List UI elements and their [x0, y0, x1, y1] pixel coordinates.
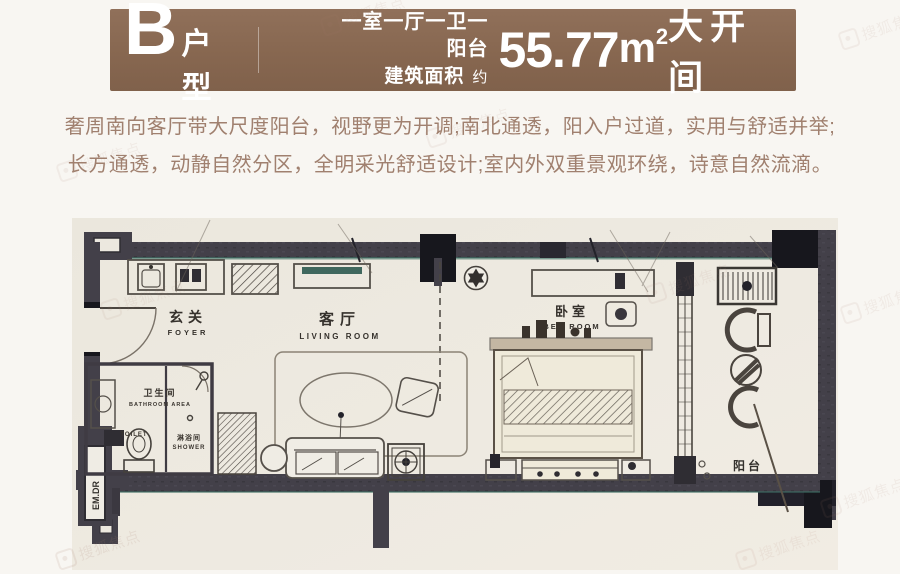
watermark: 搜狐焦点: [837, 5, 900, 52]
description-paragraph: 奢周南向客厅带大尺度阳台，视野更为开调;南北通透，阳入户过道，实用与舒适并举; …: [60, 108, 840, 184]
bedroom-label-cn: 卧室: [555, 304, 589, 319]
foyer-label-cn: 玄关: [169, 309, 207, 325]
bed-bench-icon: [522, 460, 618, 480]
watermark-camera-icon: [837, 27, 861, 51]
tv-icon: [302, 267, 362, 274]
area-value: 55.77: [498, 18, 618, 82]
area-prefix-line: 建筑面积约: [321, 63, 489, 91]
balcony-label: 阳台: [733, 458, 763, 473]
living-room-label-cn: 客厅: [318, 310, 361, 328]
appliance-hatched-box: [232, 264, 278, 294]
description-line-2: 长方通透，动静自然分区，全明采光舒适设计;室内外双重景观环绕，诗意自然流滴。: [60, 146, 840, 184]
living-room-label-en: LIVING ROOM: [299, 332, 380, 341]
layout-line: 一室一厅一卫一阳台: [321, 9, 489, 63]
shower-label-cn: 淋浴间: [177, 433, 201, 442]
area-approx: 约: [472, 69, 488, 86]
unit-type-label: 户型: [181, 19, 231, 107]
bathroom-label-en: BATHROOM AREA: [129, 402, 191, 408]
unit-letter: B: [124, 0, 177, 64]
unit-header-banner: B 户型 一室一厅一卫一阳台 建筑面积约 55.77 m 2 大开间: [110, 9, 796, 91]
shower-label-en: SHOWER: [173, 445, 206, 451]
bathroom-label-cn: 卫生间: [143, 387, 176, 398]
unit-tag: 大开间: [668, 0, 780, 101]
em-dr-label: EM.DR: [91, 481, 101, 511]
unit-spec: 一室一厅一卫一阳台 建筑面积约: [321, 9, 489, 91]
area-value-group: 55.77 m 2: [498, 18, 668, 82]
area-superscript: 2: [656, 26, 668, 48]
side-table-icon: [261, 445, 287, 471]
bed-icon: [494, 350, 642, 458]
area-prefix: 建筑面积: [384, 66, 464, 87]
foyer-label-en: FOYER: [168, 328, 209, 337]
description-line-1: 奢周南向客厅带大尺度阳台，视野更为开调;南北通透，阳入户过道，实用与舒适并举;: [60, 108, 840, 146]
headboard-shelf: [490, 338, 652, 350]
floor-lamp-icon: [338, 412, 344, 418]
sofa-icon: [286, 438, 384, 478]
floor-plan-svg: EM.DR 玄关 FOYER 客厅 LIVING ROOM 卧室 BED ROO…: [70, 218, 850, 574]
unit-title: B 户型: [124, 0, 232, 107]
hatched-rack: [218, 413, 256, 474]
compass-star-icon: [465, 267, 488, 290]
balcony-window-wall: [674, 262, 696, 484]
area-unit: m: [619, 18, 656, 78]
toilet-label: TOILET: [120, 432, 147, 438]
banner-divider: [258, 27, 259, 73]
